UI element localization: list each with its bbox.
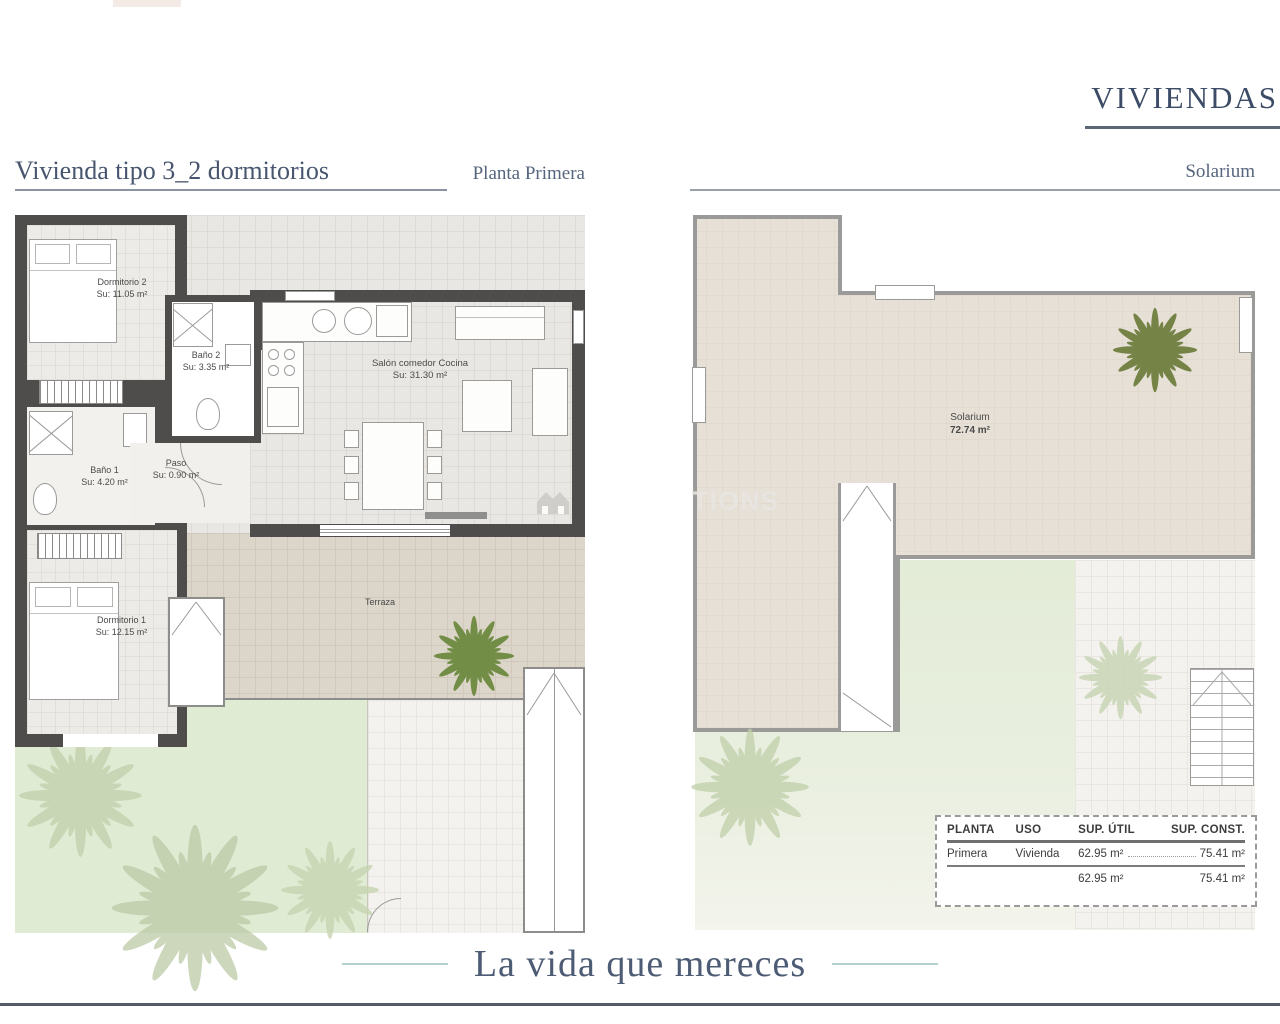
room-dormitorio2: Dormitorio 2 Su: 11.05 m² — [27, 225, 175, 380]
stair-arrow-icon — [841, 689, 893, 731]
staircase — [838, 483, 896, 731]
staircase — [523, 667, 585, 933]
chair — [344, 482, 359, 500]
room-label-dormitorio2: Dormitorio 2 Su: 11.05 m² — [72, 277, 172, 300]
right-plan-rule — [690, 189, 1280, 191]
tagline-rule-left — [342, 963, 448, 965]
armchair — [462, 380, 512, 432]
brand-title: VIVIENDAS — [1091, 80, 1278, 116]
room-label-bano2: Baño 2 Su: 3.35 m² — [172, 350, 240, 373]
room-name: Dormitorio 2 — [72, 277, 172, 289]
bed — [29, 582, 119, 700]
right-plan-subtitle: Solarium — [1140, 161, 1255, 183]
stair-arrow-icon — [170, 599, 223, 639]
room-label-salon: Salón comedor Cocina Su: 31.30 m² — [335, 358, 505, 383]
glass-door — [320, 525, 450, 536]
bed-line — [30, 613, 118, 614]
room-label-paso: Paso Su: 0.90 m² — [135, 458, 217, 481]
room-bano2: Baño 2 Su: 3.35 m² — [165, 295, 261, 443]
room-label-terraza: Terraza — [325, 597, 435, 609]
left-plan-title: Vivienda tipo 3_2 dormitorios — [15, 156, 329, 186]
room-label-solarium: Solarium 72.74 m² — [915, 411, 1025, 437]
chair — [427, 456, 442, 474]
wall-vent — [692, 367, 706, 423]
patio-area — [367, 700, 523, 933]
kitchen-sink — [344, 307, 372, 335]
solarium-plan: Solarium 72.74 m² — [690, 215, 1260, 933]
wardrobe — [39, 380, 123, 404]
palm-tree-icon — [1112, 307, 1198, 398]
palm-tree-icon — [280, 840, 380, 945]
house-icon — [534, 484, 572, 518]
wardrobe — [37, 533, 122, 559]
room-area: Su: 3.35 m² — [172, 362, 240, 374]
cropped-logo — [113, 0, 181, 7]
shower — [29, 411, 73, 455]
stair-arrow-icon — [841, 483, 893, 525]
room-name: Salón comedor Cocina — [335, 358, 505, 370]
bottom-rule — [0, 1003, 1280, 1006]
chair — [344, 430, 359, 448]
room-name: Dormitorio 1 — [69, 615, 174, 627]
pillow — [76, 244, 111, 264]
watermark: TIONS — [534, 484, 780, 518]
sofa — [532, 368, 568, 436]
left-plan-title-rule — [15, 189, 447, 191]
room-dormitorio1: Dormitorio 1 Su: 12.15 m² — [27, 530, 177, 734]
room-name: Baño 2 — [172, 350, 240, 362]
room-name: Terraza — [325, 597, 435, 609]
sofa — [455, 306, 545, 340]
pillow — [35, 244, 70, 264]
stair-arrow-icon — [525, 669, 583, 719]
palm-tree-icon — [1078, 635, 1163, 725]
wall-vent — [1239, 297, 1253, 353]
tagline: La vida que mereces — [474, 942, 806, 986]
palm-tree-icon — [433, 615, 515, 702]
toilet — [196, 398, 220, 430]
pillow — [35, 587, 70, 607]
room-name: Solarium — [915, 411, 1025, 424]
kitchen-appliance — [376, 305, 408, 337]
room-area: Su: 11.05 m² — [72, 289, 172, 301]
room-area: Su: 31.30 m² — [335, 370, 505, 382]
room-area: 72.74 m² — [950, 425, 990, 436]
staircase — [168, 597, 225, 707]
room-area: Su: 12.15 m² — [69, 627, 174, 639]
left-plan-subtitle: Planta Primera — [468, 163, 585, 185]
palm-tree-icon — [110, 823, 280, 998]
room-area: Su: 0.90 m² — [135, 470, 217, 482]
room-label-dormitorio1: Dormitorio 1 Su: 12.15 m² — [69, 615, 174, 638]
pillow — [77, 587, 112, 607]
tv-sideboard — [425, 512, 487, 519]
toilet — [33, 483, 57, 515]
tagline-rule-right — [832, 963, 938, 965]
dining-table — [362, 422, 424, 510]
brand-rule — [1085, 126, 1280, 129]
chair — [427, 482, 442, 500]
palm-tree-icon — [690, 727, 810, 852]
first-floor-plan: Terraza — [15, 215, 585, 933]
wall-vent — [573, 310, 584, 344]
room-name: Paso — [135, 458, 217, 470]
door-opening — [63, 734, 158, 747]
watermark-text: TIONS — [692, 486, 780, 517]
bed-line — [30, 270, 116, 271]
chair — [427, 430, 442, 448]
sink — [123, 413, 147, 447]
window — [285, 291, 335, 301]
floorplan-sheet: VIVIENDAS Vivienda tipo 3_2 dormitorios … — [0, 0, 1280, 1024]
kitchen-counter — [262, 342, 304, 434]
chair — [344, 456, 359, 474]
wall-vent — [875, 285, 935, 300]
shower — [173, 303, 213, 347]
kitchen-sink — [312, 309, 336, 333]
